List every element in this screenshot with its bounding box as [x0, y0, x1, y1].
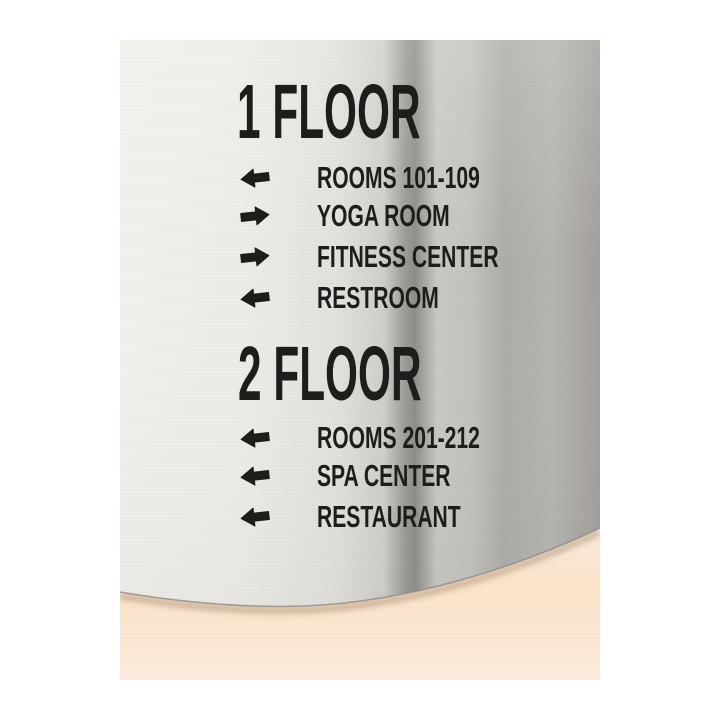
sign-photo: 1 FLOOR ROOMS 101-109 YOGA ROOM FITNESS …	[120, 40, 600, 680]
right-arrow-icon	[239, 245, 271, 268]
directory-row: SPA CENTER	[240, 464, 513, 488]
row-label: ROOMS 101-109	[317, 166, 480, 190]
row-label: RESTROOM	[317, 286, 439, 310]
row-label: YOGA ROOM	[317, 204, 450, 228]
floor-2-heading: 2 FLOOR	[238, 336, 422, 413]
directory-row: ROOMS 201-212	[240, 426, 557, 450]
sign-directory: 1 FLOOR ROOMS 101-109 YOGA ROOM FITNESS …	[120, 40, 600, 680]
floor-1-heading: 1 FLOOR	[237, 74, 421, 151]
directory-row: RESTAURANT	[240, 505, 528, 529]
directory-row: RESTROOM	[240, 286, 496, 310]
row-label: SPA CENTER	[317, 464, 451, 488]
row-label: RESTAURANT	[317, 505, 461, 529]
row-label: FITNESS CENTER	[317, 245, 499, 269]
product-photo-page: 1 FLOOR ROOMS 101-109 YOGA ROOM FITNESS …	[0, 0, 720, 720]
directory-row: ROOMS 101-109	[240, 166, 557, 190]
left-arrow-icon	[239, 426, 271, 449]
directory-row: FITNESS CENTER	[240, 245, 584, 269]
directory-row: YOGA ROOM	[240, 204, 512, 228]
left-arrow-icon	[239, 286, 271, 309]
left-arrow-icon	[239, 464, 271, 487]
right-arrow-icon	[239, 204, 271, 227]
left-arrow-icon	[239, 505, 271, 528]
left-arrow-icon	[239, 166, 271, 189]
row-label: ROOMS 201-212	[317, 426, 480, 450]
